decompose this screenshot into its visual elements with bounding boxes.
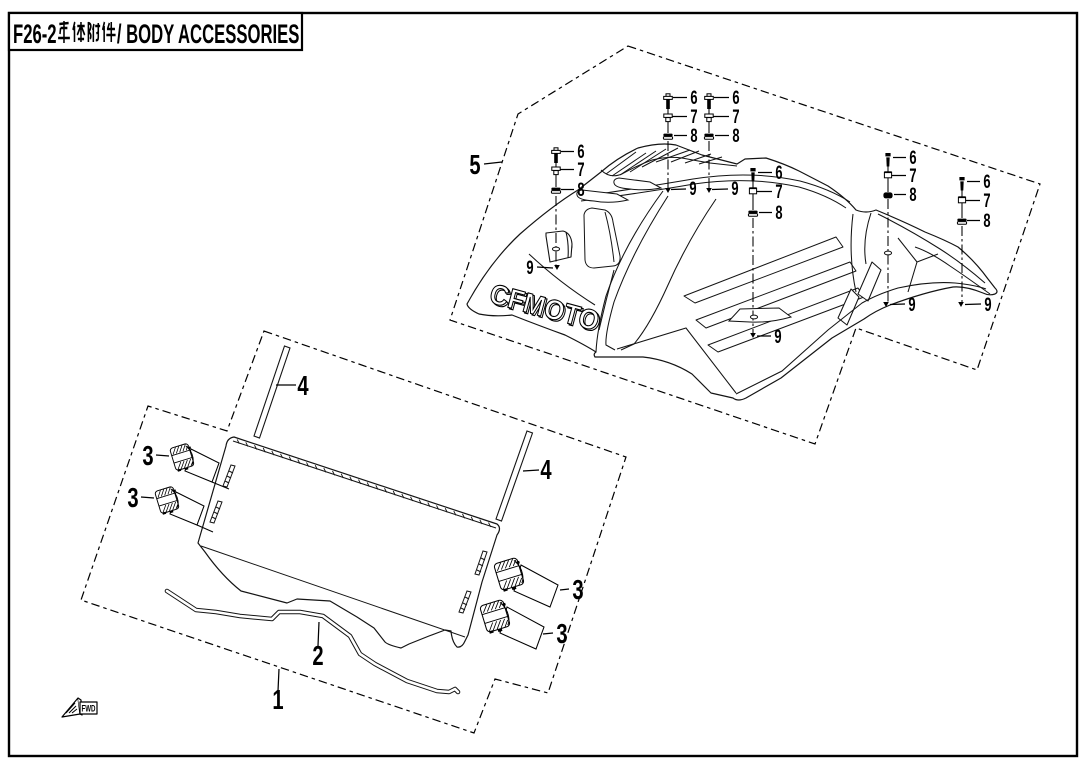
svg-text:6: 6 <box>983 172 990 193</box>
svg-text:9: 9 <box>689 179 696 200</box>
svg-text:7: 7 <box>577 160 584 181</box>
svg-text:9: 9 <box>984 295 991 316</box>
svg-text:7: 7 <box>690 107 697 128</box>
svg-text:7: 7 <box>732 107 739 128</box>
svg-text:/ BODY ACCESSORIES: / BODY ACCESSORIES <box>117 19 300 49</box>
svg-text:1: 1 <box>272 685 283 716</box>
svg-text:3: 3 <box>556 619 567 650</box>
svg-text:6: 6 <box>690 88 697 109</box>
svg-text:9: 9 <box>774 327 781 348</box>
svg-text:3: 3 <box>142 441 153 472</box>
svg-text:7: 7 <box>909 166 916 187</box>
svg-text:8: 8 <box>775 203 782 224</box>
svg-text:6: 6 <box>732 88 739 109</box>
svg-text:7: 7 <box>983 191 990 212</box>
svg-text:8: 8 <box>577 180 584 201</box>
svg-text:8: 8 <box>690 126 697 147</box>
svg-text:9: 9 <box>731 179 738 200</box>
svg-text:8: 8 <box>732 126 739 147</box>
svg-text:9: 9 <box>526 258 533 279</box>
svg-text:8: 8 <box>909 185 916 206</box>
svg-text:F26-2: F26-2 <box>13 19 57 49</box>
svg-text:FWD: FWD <box>82 704 96 714</box>
svg-text:4: 4 <box>540 455 552 486</box>
svg-text:4: 4 <box>297 371 309 402</box>
svg-text:8: 8 <box>983 211 990 232</box>
svg-text:9: 9 <box>908 295 915 316</box>
svg-text:3: 3 <box>572 575 583 606</box>
svg-text:5: 5 <box>469 150 480 181</box>
svg-text:2: 2 <box>312 641 323 672</box>
svg-text:3: 3 <box>127 483 138 514</box>
svg-text:7: 7 <box>775 182 782 203</box>
svg-text:6: 6 <box>775 163 782 184</box>
